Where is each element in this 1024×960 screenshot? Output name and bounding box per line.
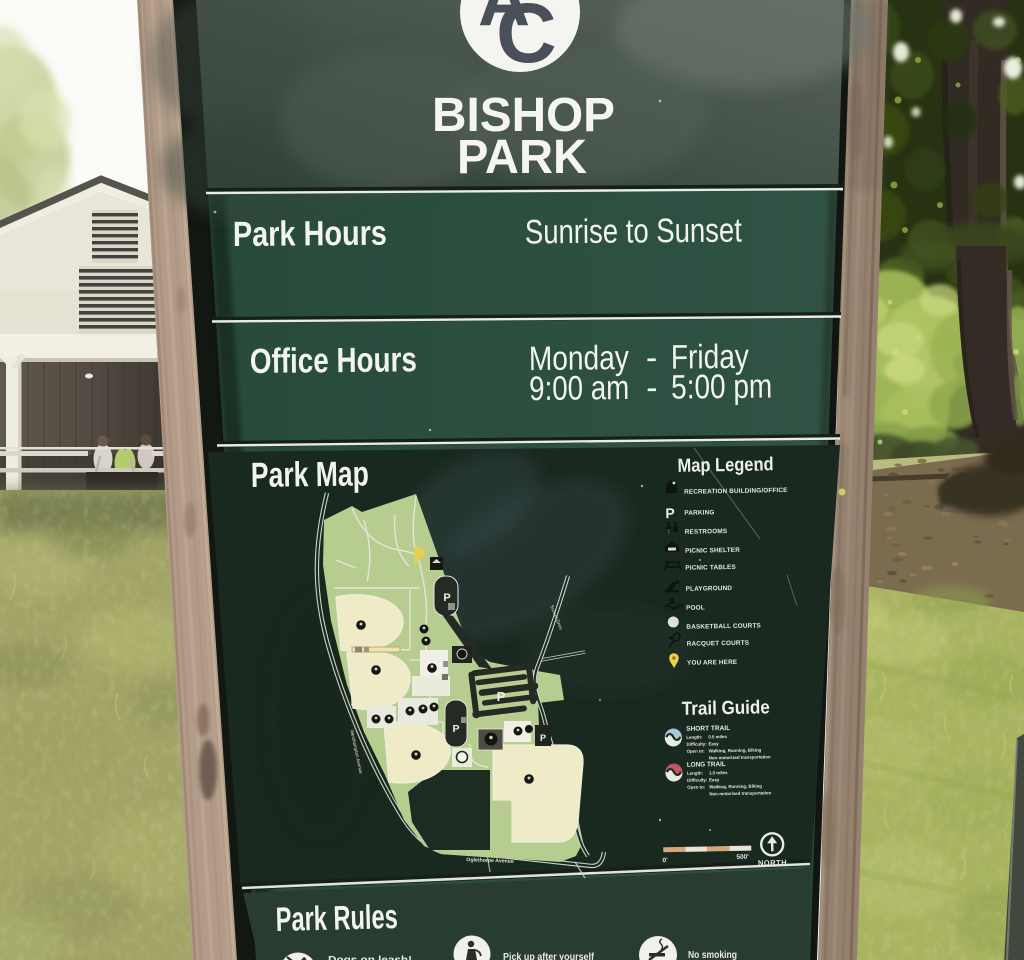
- svg-text:Sunrise to Sunset: Sunrise to Sunset: [525, 212, 743, 252]
- svg-text:P: P: [665, 505, 675, 521]
- svg-text:Open to:: Open to:: [687, 748, 706, 753]
- svg-text:Dogs on leash!: Dogs on leash!: [328, 954, 412, 960]
- svg-text:YOU ARE HERE: YOU ARE HERE: [687, 659, 738, 667]
- svg-text:P: P: [540, 733, 546, 743]
- svg-text:RACQUET COURTS: RACQUET COURTS: [687, 640, 750, 648]
- svg-text:Walking, Running, Biking: Walking, Running, Biking: [709, 747, 762, 753]
- svg-text:PLAYGROUND: PLAYGROUND: [686, 585, 733, 593]
- svg-text:Difficulty:: Difficulty:: [687, 777, 708, 782]
- svg-text:500': 500': [736, 854, 749, 861]
- svg-text:BASKETBALL COURTS: BASKETBALL COURTS: [686, 622, 761, 630]
- svg-text:0': 0': [662, 857, 668, 864]
- svg-text:C: C: [496, 0, 557, 80]
- svg-text:POOL: POOL: [686, 604, 705, 611]
- svg-text:9:00 am: 9:00 am: [529, 369, 629, 408]
- svg-text:Length:: Length:: [686, 734, 703, 739]
- svg-text:Park Rules: Park Rules: [275, 898, 398, 939]
- svg-text:Park Map: Park Map: [251, 454, 370, 495]
- svg-text:Length:: Length:: [687, 770, 704, 775]
- svg-text:P: P: [452, 723, 459, 735]
- svg-text:Park Hours: Park Hours: [233, 214, 387, 254]
- svg-text:LONG TRAIL: LONG TRAIL: [687, 761, 726, 769]
- svg-text:PARKING: PARKING: [684, 509, 714, 517]
- svg-text:1.0 miles: 1.0 miles: [709, 770, 728, 775]
- svg-text:Easy: Easy: [709, 777, 720, 782]
- svg-text:No smoking: No smoking: [688, 949, 737, 960]
- svg-text:SHORT TRAIL: SHORT TRAIL: [686, 725, 730, 733]
- svg-text:Pick up after yourself: Pick up after yourself: [503, 951, 594, 960]
- svg-text:Easy: Easy: [708, 741, 719, 746]
- svg-text:NORTH: NORTH: [758, 858, 787, 868]
- svg-text:PARK: PARK: [457, 131, 587, 184]
- svg-text:PICNIC TABLES: PICNIC TABLES: [685, 564, 736, 572]
- svg-text:Trail Guide: Trail Guide: [682, 697, 770, 720]
- svg-text:Map Legend: Map Legend: [677, 454, 773, 477]
- svg-text:P: P: [497, 689, 506, 704]
- svg-text:5:00 pm: 5:00 pm: [671, 368, 772, 407]
- svg-text:RESTROOMS: RESTROOMS: [685, 528, 728, 536]
- svg-text:Walking, Running, Biking: Walking, Running, Biking: [709, 783, 762, 789]
- svg-text:Open to:: Open to:: [687, 784, 706, 789]
- svg-text:0.5 miles: 0.5 miles: [708, 734, 727, 739]
- svg-text:PICNIC SHELTER: PICNIC SHELTER: [685, 547, 740, 555]
- svg-text:P: P: [443, 592, 450, 604]
- svg-text:Office Hours: Office Hours: [250, 340, 417, 381]
- svg-text:-: -: [646, 369, 658, 407]
- svg-text:Difficulty:: Difficulty:: [686, 741, 707, 746]
